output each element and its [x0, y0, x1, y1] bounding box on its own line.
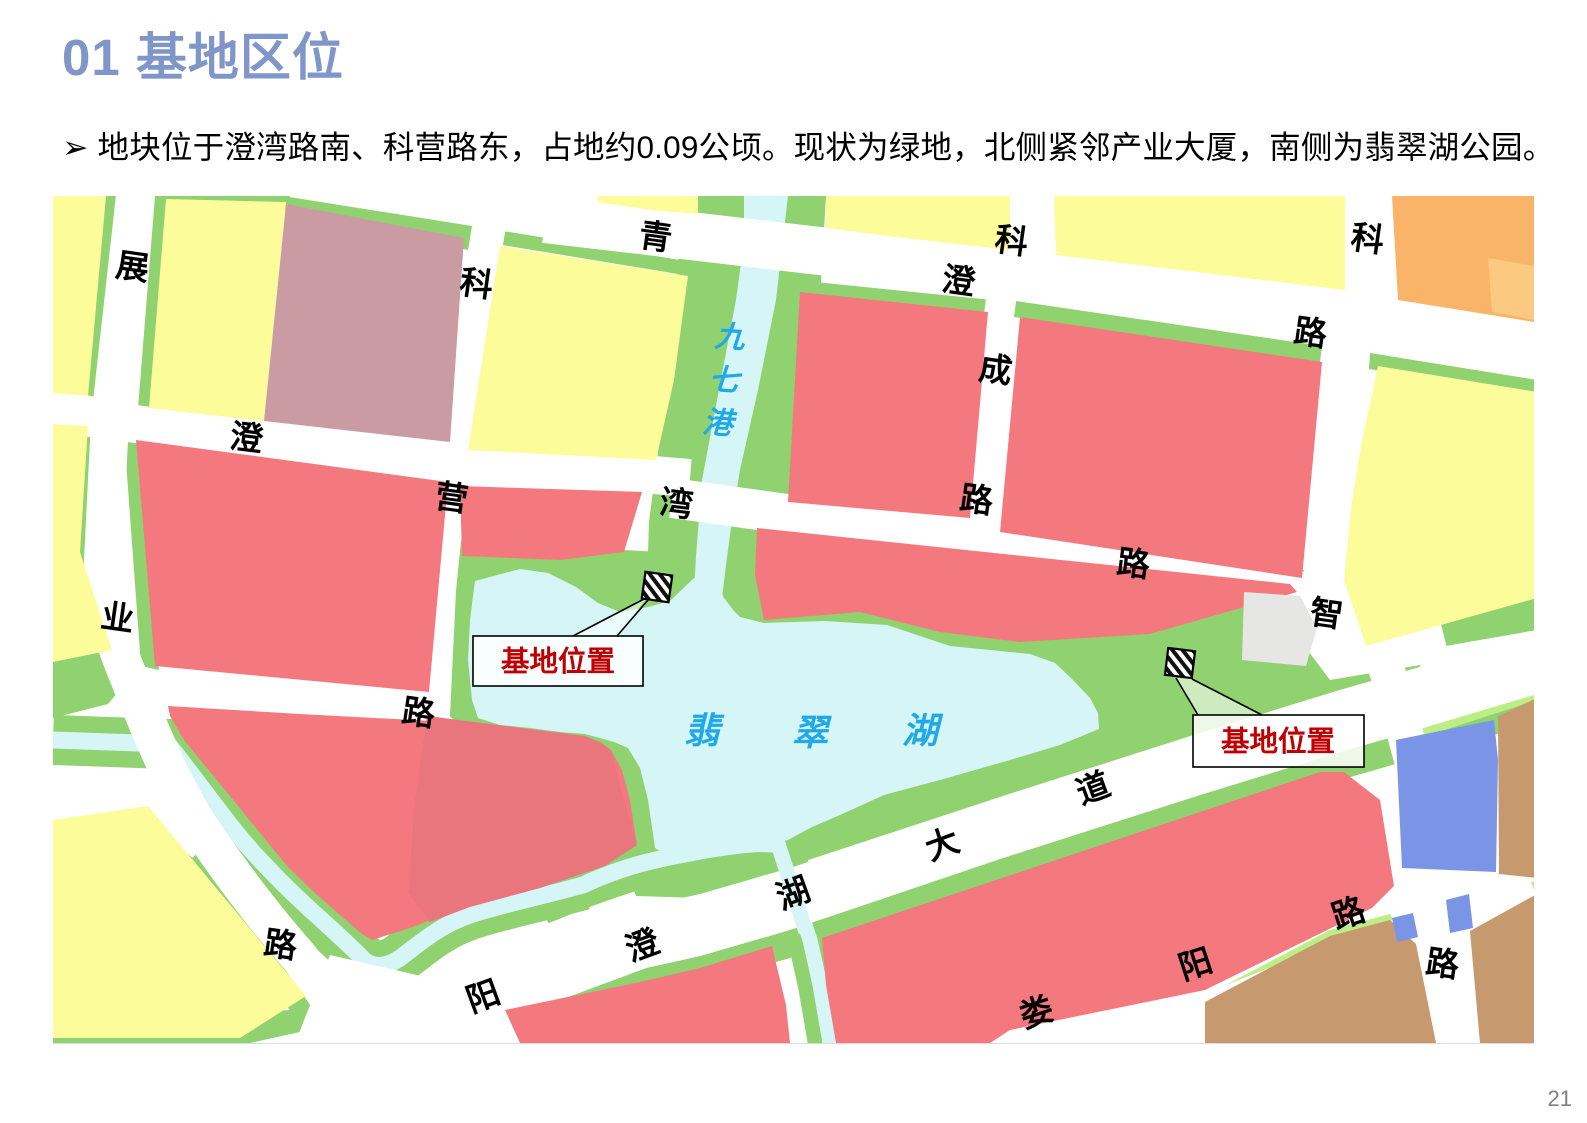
- svg-text:路: 路: [1424, 943, 1463, 984]
- svg-text:科: 科: [458, 263, 496, 304]
- svg-text:湖: 湖: [902, 710, 944, 751]
- svg-text:路: 路: [262, 924, 301, 965]
- svg-text:成: 成: [977, 349, 1015, 390]
- svg-text:展: 展: [114, 246, 152, 287]
- svg-text:智: 智: [1308, 593, 1346, 634]
- svg-text:基地位置: 基地位置: [501, 645, 615, 678]
- svg-text:业: 业: [99, 597, 137, 638]
- svg-text:湾: 湾: [658, 483, 695, 524]
- svg-text:路: 路: [400, 692, 439, 733]
- svg-text:翠: 翠: [792, 712, 832, 753]
- svg-text:营: 营: [433, 477, 471, 518]
- svg-text:澄: 澄: [940, 260, 979, 301]
- svg-text:青: 青: [637, 216, 675, 257]
- svg-text:路: 路: [1292, 312, 1331, 353]
- svg-text:翡: 翡: [684, 710, 725, 751]
- svg-text:21: 21: [1548, 1086, 1572, 1111]
- svg-text:科: 科: [1349, 218, 1387, 259]
- svg-text:九: 九: [713, 320, 747, 355]
- svg-text:路: 路: [1115, 543, 1153, 584]
- svg-text:路: 路: [958, 479, 997, 520]
- svg-text:基地位置: 基地位置: [1221, 725, 1335, 758]
- svg-text:科: 科: [993, 220, 1031, 261]
- svg-text:澄: 澄: [228, 417, 266, 458]
